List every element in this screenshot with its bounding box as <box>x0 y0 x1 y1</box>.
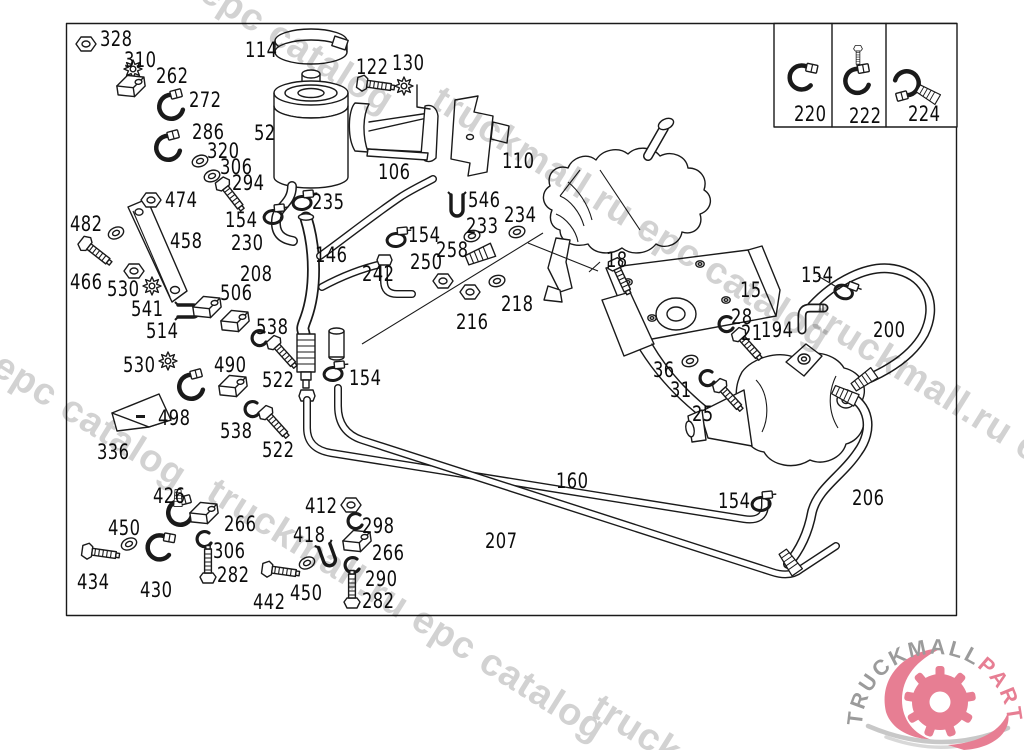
bracket-glyph <box>342 528 373 554</box>
bolt-glyph <box>356 74 395 95</box>
rib-glyph <box>464 243 495 266</box>
nut-glyph <box>76 37 96 51</box>
bolt-glyph <box>81 542 120 563</box>
clip-glyph <box>448 192 466 216</box>
washer-glyph <box>508 225 526 240</box>
bolt-glyph <box>256 404 293 443</box>
bolt-glyph <box>76 234 115 270</box>
bracket-glyph <box>116 73 147 99</box>
clamp-glyph <box>146 530 176 561</box>
clamp-glyph <box>156 89 188 122</box>
bracket-glyph <box>220 308 251 334</box>
washer-glyph <box>106 225 125 242</box>
clamp-glyph <box>153 130 185 163</box>
clamp_s-glyph <box>386 227 413 248</box>
rib-glyph <box>174 490 182 507</box>
washer-glyph <box>297 555 316 572</box>
parts-diagram-page: TRUCKMALLPARTS 3283102622722863203062944… <box>0 0 1024 750</box>
bolt-glyph <box>261 560 300 581</box>
star-glyph <box>395 77 413 95</box>
washer_c-glyph <box>348 514 362 529</box>
bolt-glyph <box>729 326 766 365</box>
clamp-glyph <box>176 369 208 402</box>
nut-glyph <box>341 498 361 512</box>
bolt-glyph <box>213 175 249 214</box>
clip-glyph <box>315 540 340 569</box>
washer-glyph <box>681 354 699 369</box>
elbow-glyph <box>802 304 824 330</box>
washer_c-glyph <box>700 371 714 386</box>
washer-glyph <box>119 536 138 553</box>
washer-glyph <box>191 153 210 169</box>
star-glyph <box>143 277 161 295</box>
bolt-glyph <box>344 571 360 609</box>
washer_c-glyph <box>245 402 259 417</box>
bolt-glyph <box>264 334 301 373</box>
inset-boxes <box>774 24 957 128</box>
diagram-artwork: TRUCKMALLPARTS <box>0 0 1024 750</box>
nut-glyph <box>460 285 480 299</box>
hose-end-valve <box>297 334 315 388</box>
bracket-glyph <box>189 500 220 526</box>
nut-glyph <box>124 264 144 278</box>
plate-110 <box>451 96 509 176</box>
bracket-glyph <box>192 294 223 320</box>
nut-glyph <box>141 193 161 207</box>
clamp_s-glyph <box>323 361 350 382</box>
nut-glyph <box>433 274 453 288</box>
bracket-106 <box>349 85 438 162</box>
star-glyph <box>159 352 177 370</box>
reservoir-52 <box>274 29 348 188</box>
washer_c-glyph <box>197 532 211 547</box>
washer-glyph <box>488 274 506 289</box>
wedge-336 <box>112 394 171 431</box>
bolt-glyph <box>200 546 216 584</box>
bracket-glyph <box>218 373 249 399</box>
washer_c-glyph <box>252 331 266 346</box>
washer-glyph <box>463 229 481 244</box>
steering-pump <box>684 344 864 466</box>
